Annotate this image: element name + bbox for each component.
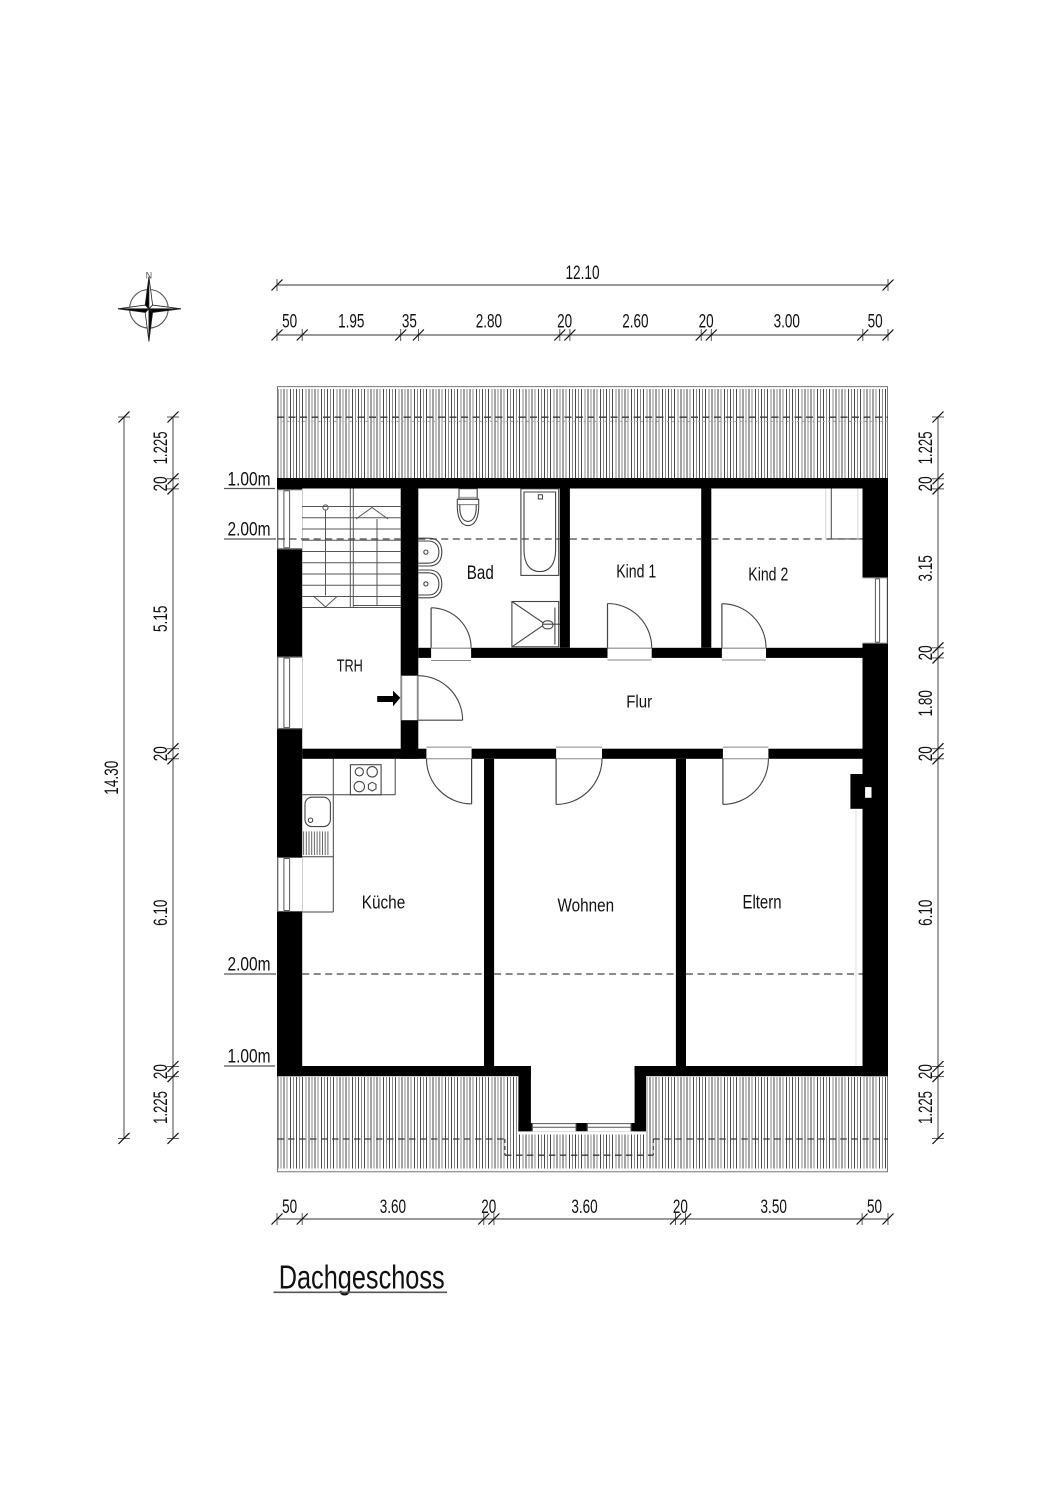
svg-text:50: 50: [868, 312, 883, 333]
svg-text:Eltern: Eltern: [743, 892, 782, 913]
svg-text:TRH: TRH: [337, 655, 363, 675]
svg-text:1.80: 1.80: [916, 690, 937, 716]
svg-text:1.00m: 1.00m: [228, 470, 271, 491]
svg-text:3.60: 3.60: [380, 1197, 406, 1218]
svg-text:2.80: 2.80: [476, 312, 502, 333]
svg-text:20: 20: [916, 645, 937, 660]
svg-text:1.95: 1.95: [338, 312, 364, 333]
svg-text:Bad: Bad: [467, 562, 494, 584]
svg-text:1.225: 1.225: [916, 431, 937, 464]
svg-text:3.60: 3.60: [571, 1197, 597, 1218]
svg-text:20: 20: [151, 746, 172, 761]
svg-text:20: 20: [916, 746, 937, 761]
svg-text:20: 20: [673, 1197, 688, 1218]
svg-text:20: 20: [151, 476, 172, 491]
svg-text:1.225: 1.225: [151, 1091, 172, 1124]
svg-text:12.10: 12.10: [566, 263, 600, 284]
svg-text:2.00m: 2.00m: [228, 520, 271, 541]
svg-text:20: 20: [916, 1064, 937, 1079]
svg-text:1.225: 1.225: [151, 431, 172, 464]
svg-text:5.15: 5.15: [151, 606, 172, 632]
svg-text:Kind 2: Kind 2: [748, 564, 788, 585]
svg-text:20: 20: [699, 312, 714, 333]
svg-text:20: 20: [916, 476, 937, 491]
svg-text:2.60: 2.60: [622, 312, 648, 333]
svg-text:6.10: 6.10: [151, 900, 172, 926]
svg-text:Dachgeschoss: Dachgeschoss: [279, 1258, 445, 1295]
svg-text:35: 35: [402, 312, 417, 333]
svg-text:3.15: 3.15: [916, 555, 937, 581]
svg-text:Küche: Küche: [362, 892, 406, 913]
svg-text:50: 50: [867, 1197, 882, 1218]
svg-text:N: N: [146, 271, 153, 281]
svg-text:Wohnen: Wohnen: [558, 895, 615, 916]
svg-text:50: 50: [282, 1197, 297, 1218]
svg-text:Kind 1: Kind 1: [616, 560, 656, 581]
svg-text:6.10: 6.10: [916, 900, 937, 926]
svg-text:1.225: 1.225: [916, 1091, 937, 1124]
svg-text:20: 20: [557, 312, 572, 333]
svg-text:2.00m: 2.00m: [228, 955, 271, 976]
svg-text:Flur: Flur: [626, 691, 652, 711]
svg-text:20: 20: [151, 1064, 172, 1079]
svg-text:3.00: 3.00: [774, 312, 800, 333]
svg-text:3.50: 3.50: [761, 1197, 787, 1218]
svg-text:1.00m: 1.00m: [228, 1047, 271, 1068]
svg-text:20: 20: [481, 1197, 496, 1218]
svg-text:14.30: 14.30: [102, 761, 123, 795]
svg-text:50: 50: [282, 312, 297, 333]
